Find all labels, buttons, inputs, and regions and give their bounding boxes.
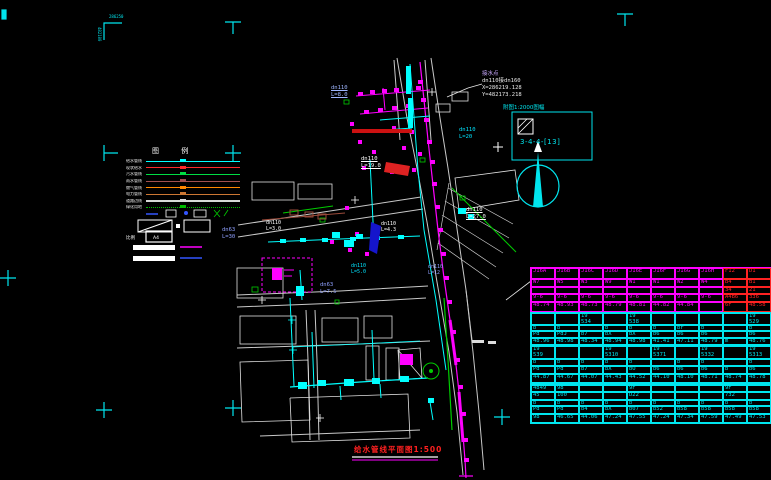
table-cell: W2 (675, 279, 699, 287)
table-cell (699, 385, 723, 392)
table-cell (603, 385, 627, 392)
table-cell: b (627, 359, 651, 366)
table-cell: D1 (747, 268, 771, 279)
table-cell: b (579, 359, 603, 366)
table-cell (699, 302, 723, 312)
table-cell: W9 (603, 279, 627, 287)
pipe-data-table: J16AJ16BJ16CJ16DJ16EJ16FJ16GJ16HF12D1W7W… (530, 267, 771, 423)
table-cell (747, 392, 771, 400)
table-cell: b52 (651, 406, 675, 414)
table-cell: 48.79 (699, 338, 723, 345)
table-cell: b6 (747, 366, 771, 374)
road-edges (237, 58, 484, 475)
legend-item-line (146, 174, 240, 175)
table-cell: b07 (627, 406, 651, 414)
table-cell (699, 287, 723, 294)
table-cell: b4 (579, 406, 603, 414)
table-cell: 48.98 (627, 338, 651, 345)
table-cell: W5 (555, 279, 579, 287)
table-cell: 46.65 (555, 414, 579, 423)
cad-canvas: 比例 A4 dn110 L=8.0dn110 L=20dn110 L=19.0d… (0, 0, 771, 480)
table-cell: b6 (699, 366, 723, 374)
legend-item-line (146, 207, 240, 208)
table-cell: b (555, 359, 579, 366)
legend-item: 现状给水 (126, 165, 240, 172)
table-cell: Pd (531, 366, 555, 374)
table-cell: 47.11 (675, 338, 699, 345)
red-features (352, 129, 412, 176)
table-cell (579, 385, 603, 392)
table-cell (603, 287, 627, 294)
table-cell: Pd (531, 331, 555, 338)
table-cell (723, 346, 747, 359)
table-cell: J16C (579, 268, 603, 279)
table-cell: 19 5332 (699, 346, 723, 359)
table-cell: m (723, 338, 747, 345)
table-cell (627, 287, 651, 294)
legend-item-line (146, 161, 240, 162)
table-cell (531, 287, 555, 294)
table-cell: 47.55 (627, 414, 651, 423)
legend-symbols: 比例 A4 (126, 210, 228, 261)
callout-x-coord: X=286219.128 (482, 85, 556, 92)
table-cell (747, 385, 771, 392)
legend-item-line (146, 187, 240, 188)
table-cell: b6 (699, 331, 723, 338)
table-cell (675, 287, 699, 294)
table-cell: b58 (747, 406, 771, 414)
table-cell: b58 (675, 406, 699, 414)
table-cell: 44.84 (675, 302, 699, 312)
table-group: 4849989F9F45100D22732bbbbbbbbbbPdPdb4bXb… (530, 384, 771, 424)
table-cell (651, 287, 675, 294)
table-cell: b58 (723, 406, 747, 414)
table-cell: Pd (555, 406, 579, 414)
legend-item-label: 绿化用地 (126, 205, 146, 209)
legend-item-label: 道路边线 (126, 199, 146, 203)
table-cell: 45 (531, 392, 555, 400)
table-cell: Pd (555, 366, 579, 374)
table-cell: b58 (699, 406, 723, 414)
table-cell: 21 (747, 287, 771, 294)
table-cell (579, 392, 603, 400)
table-cell: 48.94 (603, 338, 627, 345)
table-cell: b (675, 359, 699, 366)
table-cell (651, 385, 675, 392)
table-cell (723, 359, 747, 366)
table-cell: 48.79 (603, 302, 627, 312)
table-cell (531, 313, 555, 325)
table-cell: W1 (627, 279, 651, 287)
legend-item-label: 给水管线 (126, 159, 146, 163)
legend-sheet-label: A4 (153, 235, 159, 241)
table-cell (651, 392, 675, 400)
table-cell: 19 539 (531, 346, 555, 359)
table-cell: b (531, 359, 555, 366)
table-cell: A4B6 (723, 294, 747, 302)
legend-item-label: 污水管线 (126, 172, 146, 176)
table-cell: J16A (531, 268, 555, 279)
table-cell (723, 331, 747, 338)
table-cell: 48.76 (747, 338, 771, 345)
inset-sheet-code: 3-4-4-[13] (520, 138, 560, 146)
table-cell: 6F (723, 302, 747, 312)
table-cell: b (747, 359, 771, 366)
table-cell: 19 5313 (747, 346, 771, 359)
table-group: 19 53919 531019 537119 533219 5313bbbbbb… (530, 345, 771, 384)
table-cell (699, 392, 723, 400)
table-cell: 44.87 (531, 374, 555, 383)
table-cell: bX (603, 331, 627, 338)
table-cell: 48.58 (747, 302, 771, 312)
table-cell: 47.24 (651, 414, 675, 423)
table-cell (651, 359, 675, 366)
table-cell: 9-6 (675, 294, 699, 302)
legend-item-line (146, 181, 240, 182)
table-cell: bX (627, 331, 651, 338)
table-cell: 44.82 (651, 302, 675, 312)
table-cell: 9F (723, 385, 747, 392)
table-cell: 9-6 (555, 294, 579, 302)
table-cell: 19 538 (627, 313, 651, 325)
table-cell (555, 313, 579, 325)
table-cell: 47.53 (747, 414, 771, 423)
table-cell: b (723, 366, 747, 374)
table-cell: 41.41 (651, 338, 675, 345)
legend-item: 电力管线 (126, 191, 240, 198)
sheet-title: 给水管线平面图1:500 (354, 444, 442, 455)
table-cell: 19 5310 (603, 346, 627, 359)
table-cell: J16D (603, 268, 627, 279)
table-cell: 48.71 (699, 374, 723, 383)
table-cell: 9-6 (531, 294, 555, 302)
table-cell: b6 (651, 366, 675, 374)
table-cell: B1 (747, 279, 771, 287)
legend-item: 燃气管线 (126, 184, 240, 191)
table-cell: 44.07 (579, 374, 603, 383)
legend-item-line (146, 200, 240, 202)
callout-y-coord: Y=482173.218 (482, 92, 556, 99)
table-cell (579, 287, 603, 294)
table-cell: W3 (579, 279, 603, 287)
legend-scale-label: 比例 (126, 234, 135, 241)
table-cell (675, 313, 699, 325)
table-cell (555, 287, 579, 294)
table-cell: B4 (723, 279, 747, 287)
legend-item-label: 现状给水 (126, 166, 146, 170)
table-cell: 48.10 (675, 374, 699, 383)
table-cell (627, 346, 651, 359)
table-cell: 44.43 (603, 374, 627, 383)
legend-item-label: 燃气管线 (126, 186, 146, 190)
table-group: 19 53419 53819 529bbbbbbrbbPdPdJb7bXbXb6… (530, 312, 771, 346)
table-cell: bX (603, 366, 627, 374)
table-cell: bX (603, 406, 627, 414)
legend-item-line (146, 194, 240, 195)
table-cell: J16B (555, 268, 579, 279)
table-cell: 47.59 (699, 414, 723, 423)
legend-item: 雨水管线 (126, 178, 240, 185)
table-cell (555, 346, 579, 359)
legend-item-label: 雨水管线 (126, 179, 146, 183)
table-cell: b (699, 359, 723, 366)
table-cell: 48.74 (723, 374, 747, 383)
inset-sheet-frame (512, 112, 592, 160)
table-cell (603, 392, 627, 400)
table-cell (723, 313, 747, 325)
legend-item-label: 电力管线 (126, 192, 146, 196)
table-cell: W4 (699, 279, 723, 287)
table-cell: 100 (555, 392, 579, 400)
table-cell: 732 (723, 392, 747, 400)
table-cell: 44.10 (651, 374, 675, 383)
table-cell: 4849 (531, 385, 555, 392)
table-cell: J16H (699, 268, 723, 279)
table-cell: D22 (627, 392, 651, 400)
table-cell: 48.34 (579, 338, 603, 345)
table-cell: 48.74 (531, 302, 555, 312)
table-cell: 48.98 (555, 338, 579, 345)
legend: 给水管线现状给水污水管线雨水管线燃气管线电力管线道路边线绿化用地 (126, 158, 240, 211)
table-cell: 47.24 (603, 414, 627, 423)
callout-pipe: dn110接dn160 (482, 78, 556, 85)
legend-title: 图 例 (152, 146, 198, 156)
table-cell: F12 (723, 268, 747, 279)
table-cell: 34 (723, 287, 747, 294)
table-cell: b7 (579, 366, 603, 374)
table-cell: Pd (531, 406, 555, 414)
legend-item-line (146, 167, 240, 168)
connection-callout: 接水点 dn110接dn160 X=286219.128 Y=482173.21… (482, 71, 556, 100)
table-cell: J16E (627, 268, 651, 279)
table-cell: 9-6 (699, 294, 723, 302)
table-cell: 19 5371 (651, 346, 675, 359)
slope-hatch (437, 183, 513, 279)
table-cell: J16F (651, 268, 675, 279)
table-cell: 48.78 (747, 374, 771, 383)
table-cell: 9-6 (627, 294, 651, 302)
legend-item: 道路边线 (126, 198, 240, 205)
table-cell: b7 (579, 331, 603, 338)
table-cell: 48.93 (555, 302, 579, 312)
table-cell: 44.52 (627, 374, 651, 383)
table-cell: 48.96 (531, 338, 555, 345)
table-cell: bO (627, 366, 651, 374)
table-cell: 9-6 (579, 294, 603, 302)
table-cell: 47.49 (723, 414, 747, 423)
table-cell: 44.67 (555, 374, 579, 383)
table-cell: PdJ (555, 331, 579, 338)
table-cell: W7 (531, 279, 555, 287)
table-cell: 9-6 (651, 294, 675, 302)
legend-item: 污水管线 (126, 171, 240, 178)
legend-item: 绿化用地 (126, 204, 240, 211)
table-cell: 9-6 (603, 294, 627, 302)
table-cell: 48.73 (579, 302, 603, 312)
table-cell: 47.34 (675, 414, 699, 423)
table-cell: b6 (675, 331, 699, 338)
table-cell: b (603, 359, 627, 366)
table-cell (603, 313, 627, 325)
table-cell: 98 (531, 414, 555, 423)
table-cell: 98 (555, 385, 579, 392)
table-cell (675, 385, 699, 392)
table-cell (675, 346, 699, 359)
table-cell: W1 (651, 279, 675, 287)
table-cell (699, 313, 723, 325)
table-cell: b6 (675, 366, 699, 374)
table-cell (651, 313, 675, 325)
table-cell: 9F (627, 385, 651, 392)
north-arrow (493, 141, 559, 207)
table-cell: J16G (675, 268, 699, 279)
table-cell: 19 529 (747, 313, 771, 325)
table-cell: 48.81 (627, 302, 651, 312)
title-underline (352, 457, 438, 460)
table-cell (675, 392, 699, 400)
table-cell: b6 (651, 331, 675, 338)
table-cell: 19 534 (579, 313, 603, 325)
table-cell (579, 346, 603, 359)
inset-caption: 附图1:2000图幅 (503, 103, 544, 111)
table-cell: b6 (747, 331, 771, 338)
table-group: J16AJ16BJ16CJ16DJ16EJ16FJ16GJ16HF12D1W7W… (530, 267, 771, 313)
table-cell: 44.06 (579, 414, 603, 423)
blue-feature (369, 222, 381, 254)
legend-item: 给水管线 (126, 158, 240, 165)
table-cell: 336 (747, 294, 771, 302)
